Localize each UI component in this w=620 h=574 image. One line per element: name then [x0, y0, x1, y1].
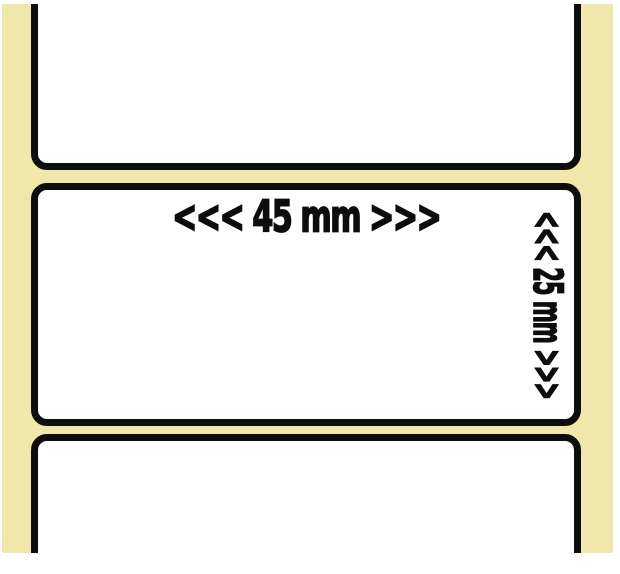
backing-liner: <<< 45 mm >>> <<< 25 mm >>>: [2, 4, 613, 553]
blank-label-bottom: [31, 434, 581, 553]
height-dimension-annotation: <<< 25 mm >>>: [524, 211, 571, 399]
dimension-label: <<< 45 mm >>> <<< 25 mm >>>: [31, 183, 581, 426]
width-dimension-annotation: <<< 45 mm >>>: [38, 195, 574, 231]
blank-label-top: [31, 4, 581, 170]
width-dimension-value: <<< 45 mm >>>: [172, 192, 440, 243]
label-roll-image: <<< 45 mm >>> <<< 25 mm >>>: [0, 0, 620, 574]
